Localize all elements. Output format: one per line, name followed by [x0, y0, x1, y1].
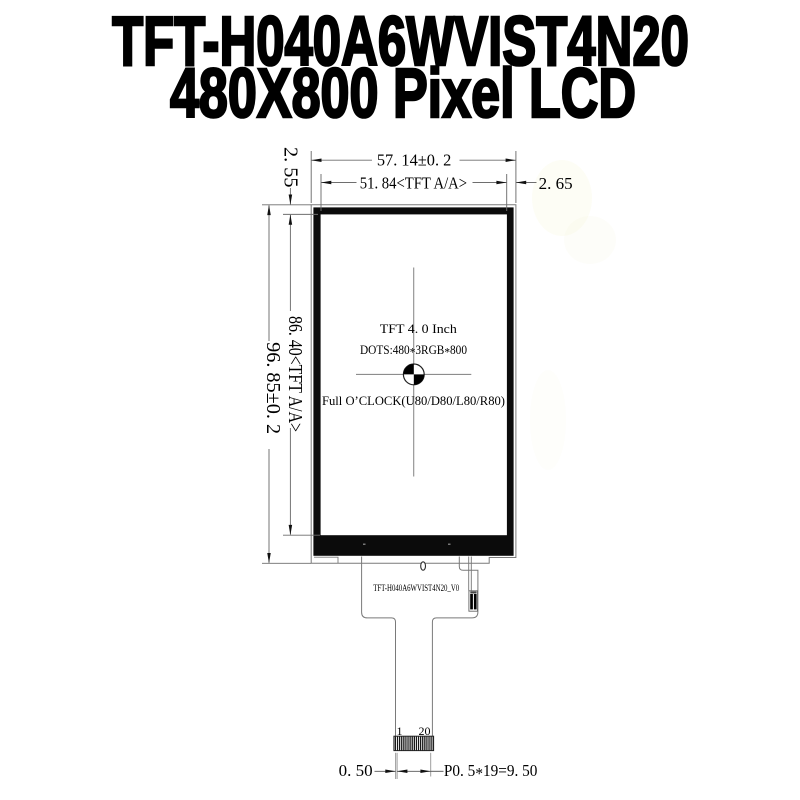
svg-text:TFT 4. 0 Inch: TFT 4. 0 Inch [380, 321, 458, 336]
svg-text:86. 40<TFT A/A>: 86. 40<TFT A/A> [284, 316, 306, 432]
svg-text:P0. 5*19=9. 50: P0. 5*19=9. 50 [444, 761, 538, 783]
svg-text:0. 50: 0. 50 [339, 761, 373, 780]
svg-text:1: 1 [397, 724, 403, 738]
svg-text:2. 65: 2. 65 [539, 174, 573, 193]
svg-text:480X800 Pixel LCD: 480X800 Pixel LCD [170, 55, 636, 133]
svg-text:20: 20 [419, 724, 431, 738]
svg-text:51. 84<TFT A/A>: 51. 84<TFT A/A> [360, 173, 467, 192]
svg-text:2. 55: 2. 55 [279, 147, 301, 188]
svg-text:96. 85±0. 2: 96. 85±0. 2 [262, 342, 284, 434]
svg-text:57. 14±0. 2: 57. 14±0. 2 [377, 151, 452, 170]
svg-text:TFT-H040A6WVIST4N20_V0: TFT-H040A6WVIST4N20_V0 [373, 583, 459, 593]
svg-text:Full O’CLOCK(U80/D80/L80/R80): Full O’CLOCK(U80/D80/L80/R80) [322, 393, 505, 408]
svg-text:DOTS:480*3RGB*800: DOTS:480*3RGB*800 [360, 342, 467, 360]
